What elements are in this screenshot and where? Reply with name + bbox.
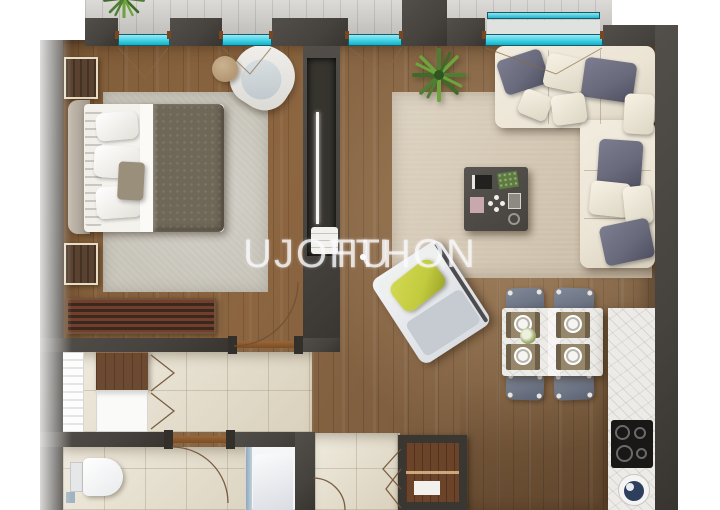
place-setting [556, 312, 590, 338]
balcony-plant [100, 0, 148, 18]
burner [634, 427, 646, 439]
door-post [294, 336, 303, 354]
tv [316, 112, 319, 224]
entry-closet [398, 435, 467, 510]
candle-set [488, 195, 506, 213]
flower-centerpiece [520, 328, 536, 344]
bathtub-rim [246, 447, 252, 510]
media-console [311, 227, 338, 254]
closet-shelf [406, 471, 459, 474]
window-hinge [269, 31, 273, 39]
sink-bowl [624, 481, 644, 501]
bed-duvet [153, 104, 224, 232]
bathroom-door-threshold [172, 436, 228, 443]
place-setting [556, 344, 590, 370]
sofa-pillow [623, 93, 655, 135]
bedroom-dresser-bench [66, 298, 216, 334]
sofa-pillow [550, 92, 588, 126]
window-hinge [167, 31, 171, 39]
toilet [83, 458, 123, 496]
door-post [228, 336, 237, 354]
wall-pier [272, 18, 348, 46]
washing-machine [96, 390, 148, 432]
decor-frame [508, 193, 521, 209]
bed-tray [117, 161, 145, 200]
window-hinge [399, 31, 403, 39]
coffee-table [464, 167, 528, 231]
kitchen-sink [618, 474, 650, 506]
burner [615, 425, 630, 440]
bathtub [245, 446, 297, 510]
washer-counter [96, 350, 148, 390]
sink-highlight [626, 483, 634, 491]
plant-tray [497, 171, 519, 190]
window-hinge [219, 31, 223, 39]
bedroom-side-table [212, 56, 238, 82]
window-hinge [482, 31, 486, 39]
closet-box [414, 481, 440, 495]
bedroom-south-wall [300, 338, 340, 352]
place-setting [506, 344, 540, 370]
wall-pier [447, 18, 485, 46]
wall-pier [85, 18, 118, 46]
burner [616, 445, 633, 462]
door-post [226, 430, 235, 449]
window-bay-sill [487, 20, 600, 34]
door-post [164, 430, 173, 449]
bedroom-door-threshold [236, 341, 296, 348]
window [222, 34, 272, 46]
book [470, 197, 484, 213]
bathtub-interior [253, 454, 293, 510]
book [472, 175, 492, 189]
window-hinge [600, 31, 604, 39]
left-edge-fade [0, 0, 72, 510]
burner [636, 448, 647, 459]
window [485, 34, 603, 46]
bathroom-entry-wall [295, 432, 315, 510]
wall-pier [170, 18, 222, 46]
wall-right [655, 25, 678, 510]
wall-pier [402, 0, 447, 46]
floorplan-image: UJOTTHON HU [0, 0, 720, 510]
entry-tile-floor [315, 433, 400, 510]
bed-pillow [95, 110, 139, 142]
window-hinge [345, 31, 349, 39]
window-hinge [115, 31, 119, 39]
cooktop [611, 420, 653, 468]
decor-tray [508, 213, 520, 225]
window-bay-glazing [487, 12, 600, 19]
window [118, 34, 170, 46]
window [348, 34, 402, 46]
potted-plant [408, 44, 470, 106]
